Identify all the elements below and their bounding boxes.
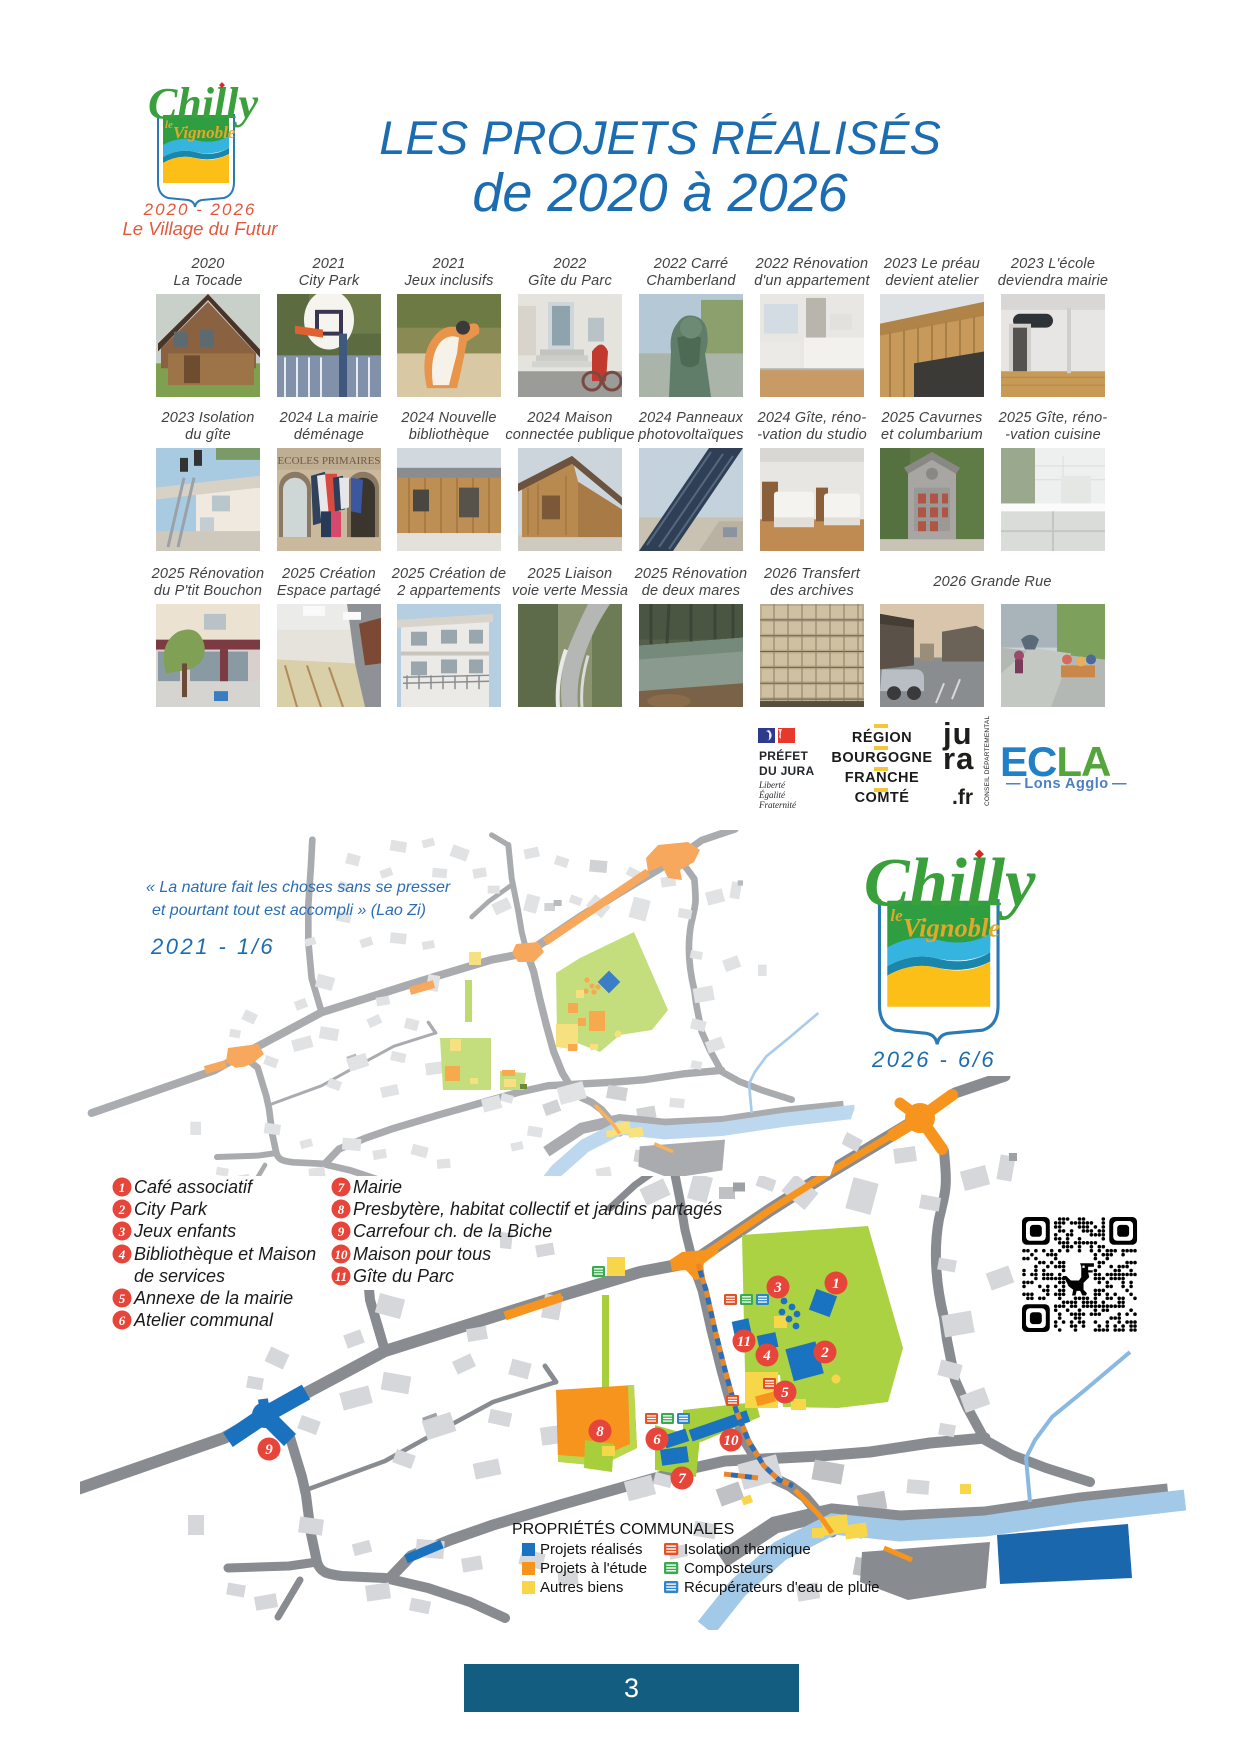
svg-text:8: 8: [338, 1202, 345, 1217]
svg-text:7: 7: [338, 1180, 345, 1195]
svg-text:4: 4: [118, 1247, 126, 1262]
svg-text:3: 3: [118, 1224, 126, 1239]
svg-text:11: 11: [335, 1269, 347, 1284]
svg-text:Vignoble: Vignoble: [903, 913, 1000, 943]
svg-text:5: 5: [119, 1291, 126, 1306]
svg-text:1: 1: [119, 1180, 126, 1195]
svg-text:9: 9: [338, 1224, 345, 1239]
svg-text:10: 10: [335, 1247, 349, 1262]
svg-text:le: le: [890, 906, 903, 925]
svg-text:2: 2: [118, 1202, 126, 1217]
svg-text:6: 6: [119, 1313, 126, 1328]
